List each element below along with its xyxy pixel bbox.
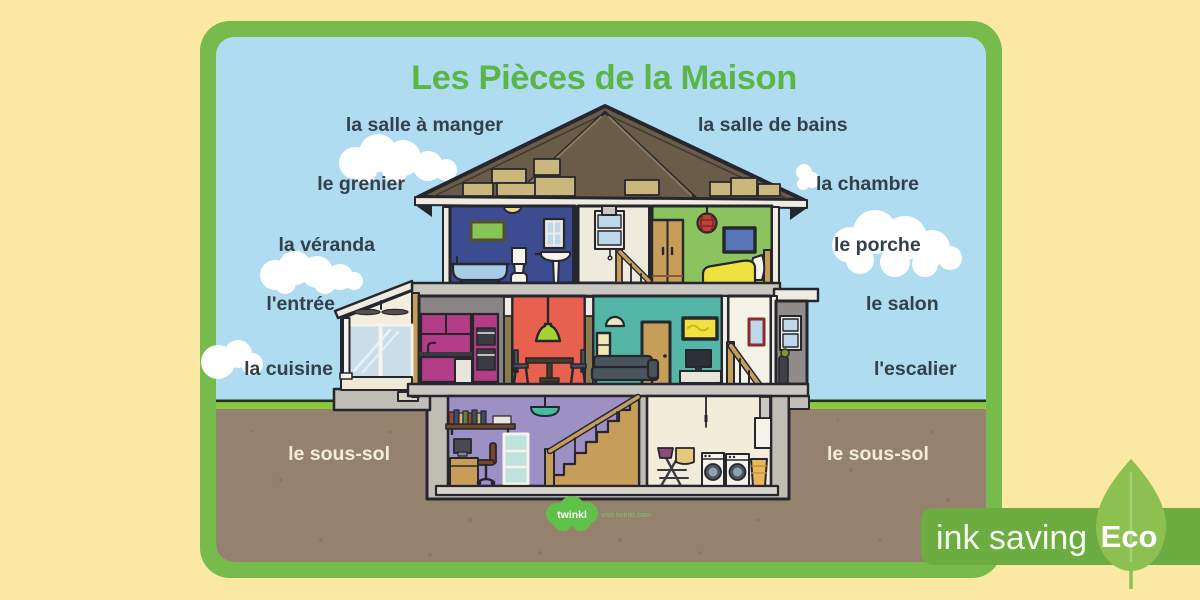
svg-text:Eco: Eco: [1101, 519, 1158, 554]
svg-text:ink saving: ink saving: [936, 519, 1087, 557]
svg-text:la véranda: la véranda: [279, 234, 376, 256]
svg-text:la chambre: la chambre: [816, 173, 919, 195]
svg-text:le sous-sol: le sous-sol: [288, 443, 390, 465]
svg-text:visit twinkl.com: visit twinkl.com: [601, 510, 651, 519]
svg-text:la salle à manger: la salle à manger: [346, 114, 504, 136]
svg-text:le porche: le porche: [834, 234, 921, 256]
svg-text:twinkl: twinkl: [557, 509, 587, 521]
svg-text:l'entrée: l'entrée: [266, 293, 335, 315]
svg-text:le salon: le salon: [866, 293, 939, 315]
svg-text:la salle de bains: la salle de bains: [698, 114, 848, 136]
svg-text:l'escalier: l'escalier: [874, 358, 957, 380]
svg-text:Les Pièces de la Maison: Les Pièces de la Maison: [411, 59, 797, 97]
svg-text:le sous-sol: le sous-sol: [827, 443, 929, 465]
svg-text:le grenier: le grenier: [317, 173, 405, 195]
svg-text:la cuisine: la cuisine: [244, 358, 333, 380]
